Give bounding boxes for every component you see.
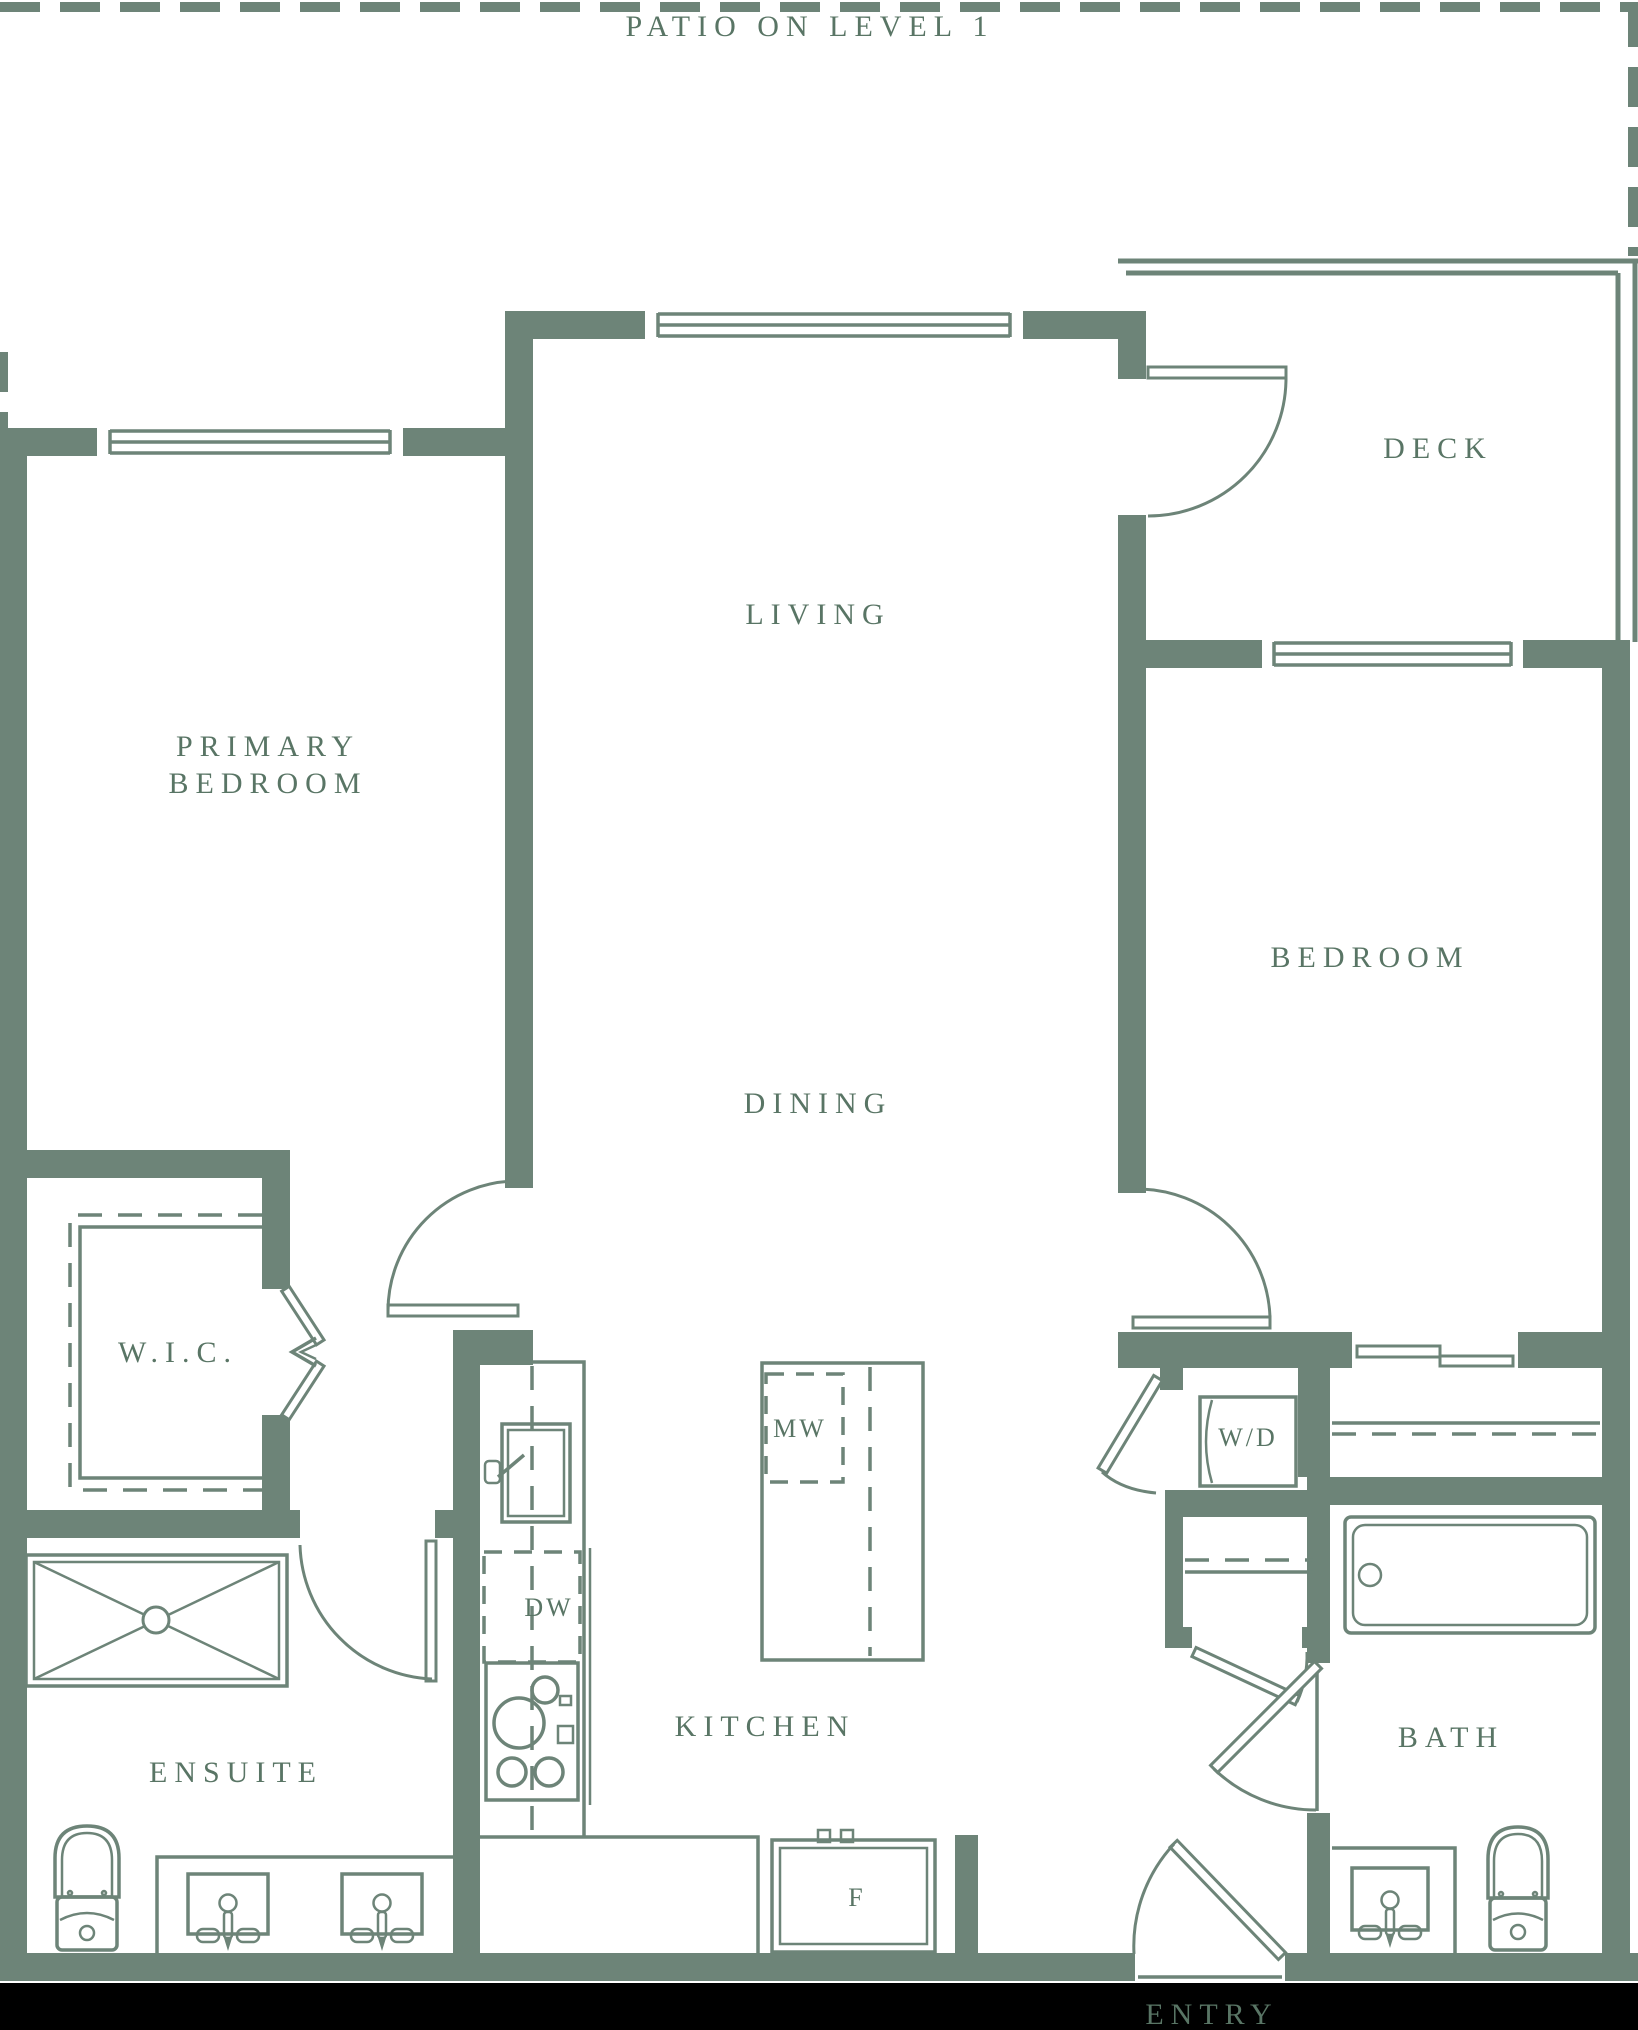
label-patio: PATIO ON LEVEL 1 <box>626 10 995 43</box>
window-living <box>645 311 1023 339</box>
wall-ensuite-north-stub <box>435 1510 453 1538</box>
bath-toilet <box>1488 1827 1548 1950</box>
label-bath: BATH <box>1398 1721 1504 1754</box>
bathtub <box>1345 1517 1595 1633</box>
bath-sink <box>1352 1868 1428 1948</box>
wall-left-exterior <box>0 428 27 1980</box>
footer: ENTRY <box>0 1983 1638 2030</box>
wall-bath-west-lower <box>1307 1813 1330 1953</box>
wic-door-chevron <box>292 1338 316 1366</box>
wall-hall-closet-west <box>1165 1490 1183 1648</box>
ensuite-shower <box>26 1555 287 1686</box>
primary-bedroom-door <box>388 1181 518 1316</box>
wall-wd-stub <box>1160 1368 1183 1390</box>
shower-drain <box>143 1607 169 1633</box>
patio-boundary <box>0 7 1638 428</box>
wall-wic-north <box>0 1150 290 1178</box>
label-fridge: F <box>848 1883 865 1912</box>
deck-railing <box>1118 261 1638 642</box>
wd-bifold-door <box>1098 1375 1162 1493</box>
wall-living-west <box>505 311 533 1188</box>
window-primary-bedroom <box>97 428 403 456</box>
wall-closet-bottom <box>1307 1477 1602 1505</box>
label-primary-line2: BEDROOM <box>168 767 367 800</box>
ensuite-vanity <box>157 1857 453 1953</box>
kitchen-fixtures <box>480 1362 935 1953</box>
wall-bottom-west <box>0 1953 1135 1981</box>
wall-fridge-stub <box>955 1835 978 1953</box>
bedroom-door <box>1133 1189 1270 1328</box>
label-microwave: MW <box>773 1414 827 1443</box>
wall-right-exterior <box>1602 640 1630 1980</box>
ensuite-fixtures <box>26 1555 453 1953</box>
label-ensuite: ENSUITE <box>149 1756 323 1789</box>
window-bedroom <box>1262 640 1523 668</box>
ensuite-sink-2 <box>342 1874 422 1951</box>
entry-door <box>1134 1840 1286 1977</box>
label-washer-dryer: W/D <box>1218 1423 1278 1452</box>
kitchen-island <box>762 1363 923 1660</box>
floor-plan-page: PATIO ON LEVEL 1 LIVING DINING DECK BEDR… <box>0 0 1638 2030</box>
wall-closet-jamb-left <box>1183 1627 1192 1648</box>
label-kitchen: KITCHEN <box>675 1710 856 1743</box>
label-wic: W.I.C. <box>118 1336 238 1369</box>
wall-wic-east-lower <box>262 1415 290 1538</box>
labels: PATIO ON LEVEL 1 LIVING DINING DECK BEDR… <box>118 10 1504 1912</box>
ensuite-toilet <box>55 1826 119 1950</box>
wall-wd-east <box>1298 1368 1330 1477</box>
ensuite-door <box>300 1541 436 1681</box>
label-living: LIVING <box>745 598 890 631</box>
label-deck: DECK <box>1383 432 1493 465</box>
wall-bottom-east <box>1285 1953 1638 1981</box>
wall-vestibule-corner <box>453 1330 533 1365</box>
wall-wic-east-upper <box>262 1178 290 1289</box>
wall-kitchen-west <box>453 1365 480 1953</box>
deck-door <box>1148 367 1286 516</box>
floor-plan-svg: PATIO ON LEVEL 1 LIVING DINING DECK BEDR… <box>0 0 1638 2030</box>
wall-deck-stub-lower <box>1118 515 1146 640</box>
ensuite-sink-1 <box>188 1874 268 1951</box>
label-dining: DINING <box>744 1087 893 1120</box>
wall-deck-stub-upper <box>1118 339 1146 379</box>
label-bedroom: BEDROOM <box>1270 941 1469 974</box>
bath-vanity <box>1332 1848 1455 1953</box>
label-entry: ENTRY <box>1145 1998 1278 2030</box>
label-dishwasher: DW <box>524 1593 573 1622</box>
label-primary-line1: PRIMARY <box>176 730 360 763</box>
wall-below-wd <box>1165 1490 1315 1517</box>
kitchen-counter-south <box>480 1837 758 1953</box>
wall-bedroom-west <box>1118 640 1146 1193</box>
footer-band <box>0 1983 1638 2030</box>
wall-ensuite-north <box>0 1510 300 1538</box>
kitchen-sink <box>485 1424 570 1522</box>
wic-double-doors <box>282 1286 324 1419</box>
